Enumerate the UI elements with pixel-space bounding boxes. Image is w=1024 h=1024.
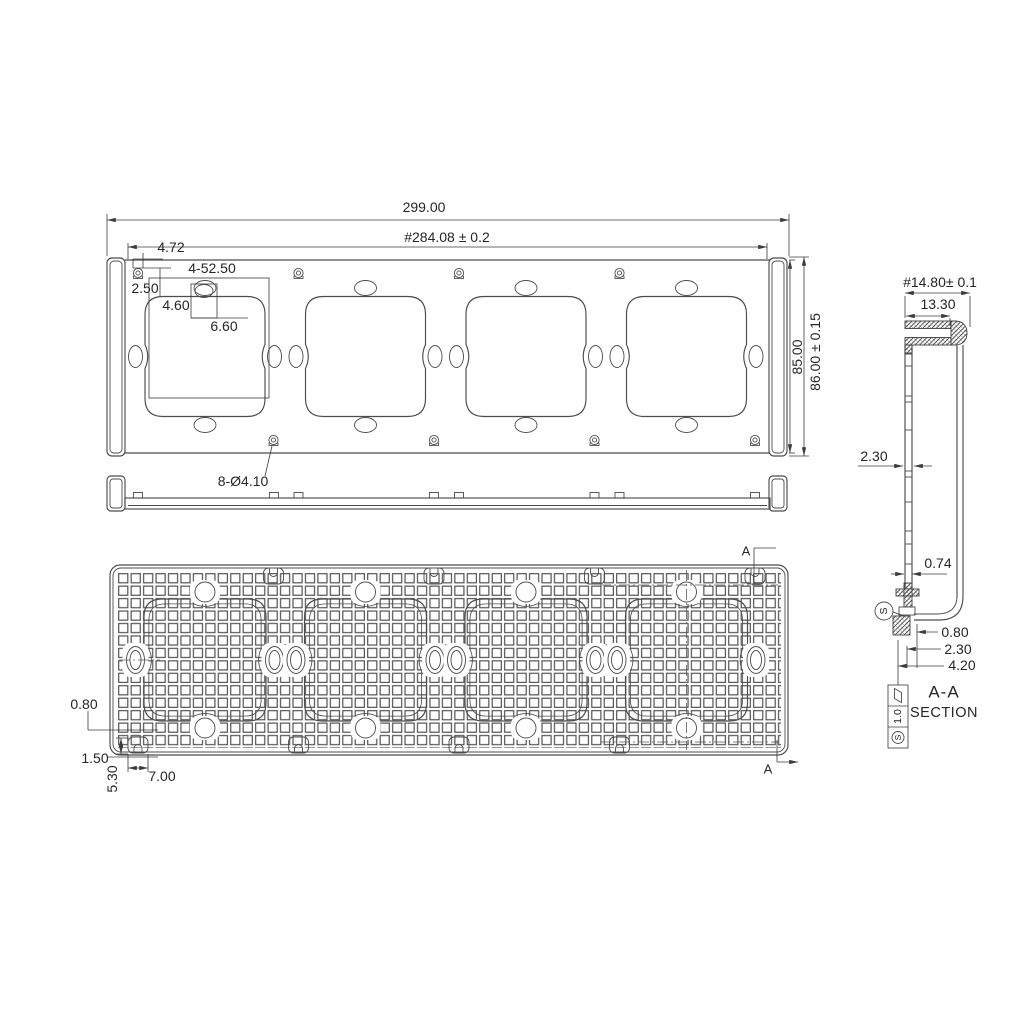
dim-overall-width: 299.00 — [403, 199, 446, 215]
section-profile — [905, 345, 963, 620]
section-subtitle: SECTION — [910, 705, 978, 721]
dim-edge-rib: 1.50 — [81, 750, 108, 766]
back-view: A A 0.80 1.50 5.30 7.00 — [70, 544, 798, 793]
section-title: A-A — [928, 683, 959, 702]
dim-depth: #14.80± 0.1 — [903, 274, 977, 290]
dim-inner-width-lines — [128, 243, 767, 259]
dim-corner-offset: 4.72 — [157, 239, 184, 255]
dim-notch-width: 6.60 — [210, 318, 237, 334]
gdt-tolerance: 1.0 — [892, 709, 904, 724]
front-view: 299.00 #284.08 ± 0.2 — [107, 199, 823, 489]
dim-notch-depth: 4.60 — [162, 297, 189, 313]
section-foot — [893, 583, 919, 635]
section-wall-ticks — [905, 353, 912, 564]
technical-drawing: 299.00 #284.08 ± 0.2 — [0, 0, 1024, 1024]
dim-step1: 0.80 — [941, 624, 968, 640]
gdt-datum-label: S — [893, 734, 903, 740]
section-marker-top: A — [742, 544, 751, 559]
dim-wall: 2.30 — [860, 448, 887, 464]
front-oval-holes — [129, 281, 764, 433]
dim-height: 85.00 — [789, 339, 805, 374]
dim-step2: 2.30 — [944, 641, 971, 657]
front-plate-outline — [107, 258, 787, 456]
datum-label: S — [878, 607, 890, 614]
section-view: #14.80± 0.1 13.30 2.30 0.74 — [858, 274, 978, 748]
side-profile-tabs — [134, 493, 760, 499]
dim-overall-height: 86.00 ± 0.15 — [807, 313, 823, 391]
dim-step3: 4.20 — [948, 657, 975, 673]
dim-flange: 13.30 — [920, 296, 955, 312]
holes-leader — [265, 446, 272, 476]
dim-edge-gap: 2.50 — [131, 280, 158, 296]
notch-detail — [191, 284, 248, 318]
dim-holes: 8-Ø4.10 — [218, 473, 269, 489]
side-profile-view — [107, 476, 787, 511]
dim-lip: 0.74 — [924, 555, 951, 571]
cad-drawing-canvas: 299.00 #284.08 ± 0.2 — [0, 0, 1024, 1024]
front-openings — [145, 297, 747, 417]
dim-openings: 4-52.50 — [188, 260, 236, 276]
dim-inner-width: #284.08 ± 0.2 — [404, 229, 490, 245]
section-flange — [905, 321, 967, 345]
dim-boss-height: 5.30 — [104, 765, 120, 792]
section-marker-bottom: A — [764, 762, 773, 777]
front-screw-symbols — [133, 268, 759, 445]
dim-rib: 0.80 — [70, 696, 97, 712]
flatness-symbol-icon — [895, 689, 902, 703]
dim-boss-width: 7.00 — [148, 768, 175, 784]
